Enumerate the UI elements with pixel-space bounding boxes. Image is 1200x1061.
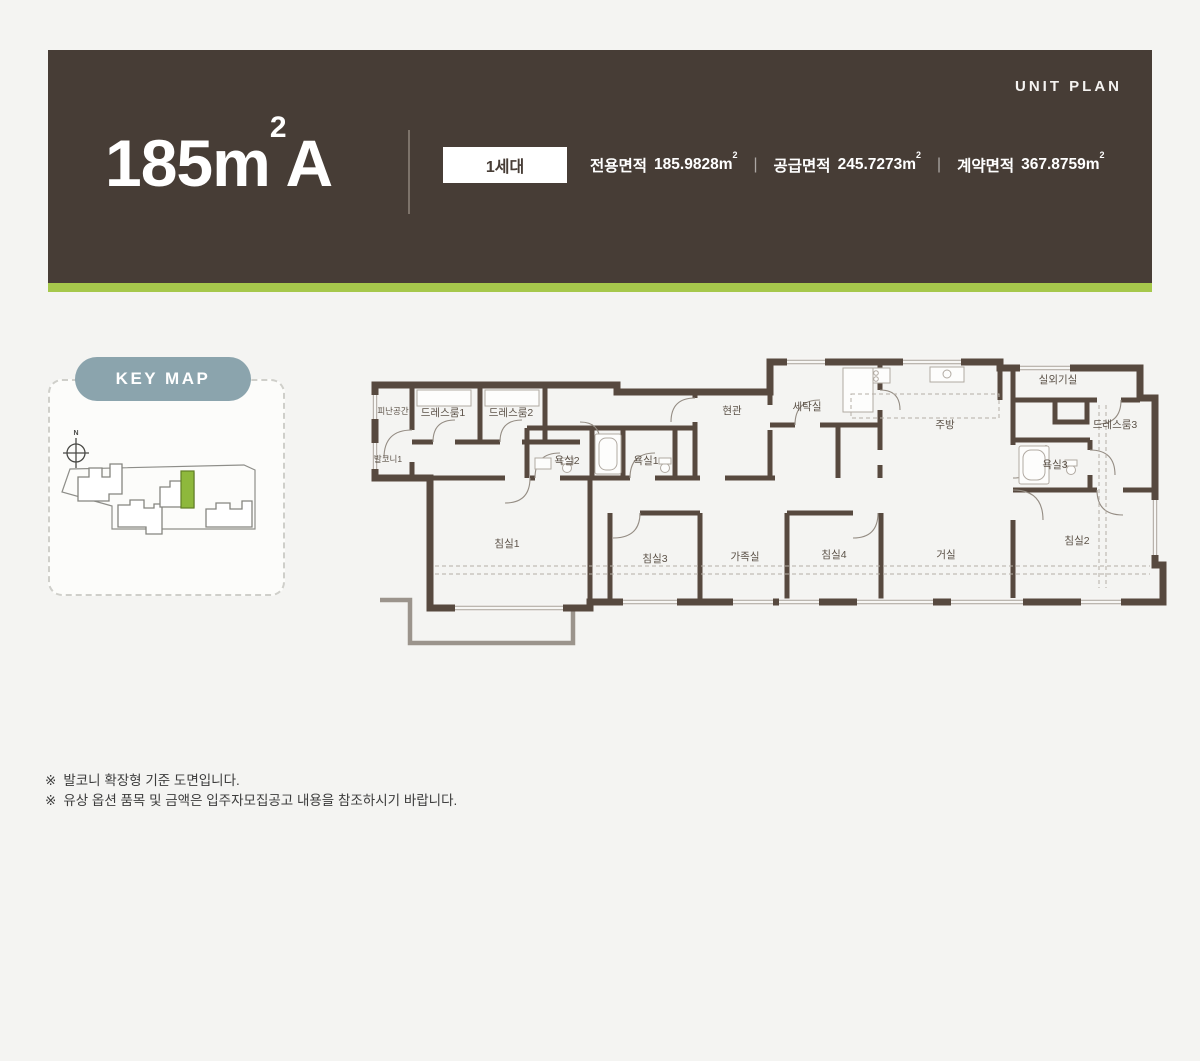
keymap-title-pill: KEY MAP [75, 357, 251, 401]
room-label: 세탁실 [793, 401, 822, 413]
footnote-mark: ※ [45, 771, 56, 791]
building-footprints [78, 464, 252, 534]
green-accent-bar [48, 283, 1152, 292]
room-label: 침실4 [821, 549, 846, 561]
room-label: 욕실3 [1042, 459, 1067, 471]
title-suffix: A [286, 126, 333, 200]
footnote-text: 발코니 확장형 기준 도면입니다. [63, 771, 239, 791]
room-label: 침실2 [1064, 535, 1089, 547]
floorplan-drawing: 피난공간 드레스룸1 드레스룸2 발코니1 욕실2 욕실1 현관 세탁실 주방 … [355, 350, 1170, 655]
unit-plan-label: UNIT PLAN [1015, 78, 1122, 95]
footnote-mark: ※ [45, 791, 56, 811]
room-label: 욕실1 [633, 455, 658, 467]
room-label: 실외기실 [1039, 374, 1078, 386]
room-label: 거실 [936, 549, 955, 561]
room-label: 드레스룸2 [489, 407, 534, 419]
keymap-label: KEY MAP [116, 369, 211, 389]
footnote-line: ※ 발코니 확장형 기준 도면입니다. [45, 771, 457, 791]
room-label: 발코니1 [374, 454, 402, 464]
area-separator: | [934, 156, 944, 174]
area-label: 공급면적 [774, 154, 831, 176]
compass-icon [63, 438, 89, 468]
area-separator: | [751, 156, 761, 174]
area-spec-supply: 공급면적 245.7273m2 [774, 154, 922, 176]
area-specs: 전용면적 185.9828m2 | 공급면적 245.7273m2 | 계약면적… [590, 147, 1105, 183]
page-title: 185m2A [105, 130, 332, 196]
area-value: 185.9828m2 [654, 155, 737, 174]
area-label: 전용면적 [590, 154, 647, 176]
area-value: 245.7273m2 [838, 155, 921, 174]
title-divider [408, 130, 410, 214]
room-label: 침실1 [494, 538, 519, 550]
room-label: 드레스룸3 [1093, 419, 1138, 431]
footnote-text: 유상 옵션 품목 및 금액은 입주자모집공고 내용을 참조하시기 바랍니다. [63, 791, 457, 811]
room-label: 피난공간 [377, 406, 408, 416]
area-label: 계약면적 [957, 154, 1014, 176]
area-spec-contract: 계약면적 367.8759m2 [957, 154, 1105, 176]
footnotes: ※ 발코니 확장형 기준 도면입니다. ※ 유상 옵션 품목 및 금액은 입주자… [45, 771, 457, 811]
room-label: 가족실 [731, 551, 760, 563]
area-spec-exclusive: 전용면적 185.9828m2 [590, 154, 738, 176]
footnote-line: ※ 유상 옵션 품목 및 금액은 입주자모집공고 내용을 참조하시기 바랍니다. [45, 791, 457, 811]
utility-closet-walls [1055, 400, 1087, 422]
page: UNIT PLAN 185m2A 1세대 전용면적 185.9828m2 | 공… [0, 0, 1200, 1061]
room-label: 욕실2 [554, 455, 579, 467]
title-main: 185m [105, 126, 270, 200]
compass-north-label: N [73, 430, 78, 437]
room-label: 현관 [722, 405, 742, 417]
title-superscript: 2 [270, 111, 286, 144]
highlighted-unit-building [181, 471, 194, 508]
header-band: UNIT PLAN 185m2A 1세대 전용면적 185.9828m2 | 공… [48, 50, 1152, 283]
household-badge: 1세대 [443, 147, 567, 183]
area-value: 367.8759m2 [1021, 155, 1104, 174]
room-label: 침실3 [642, 553, 667, 565]
room-label: 드레스룸1 [421, 407, 466, 419]
room-label: 주방 [935, 419, 955, 431]
keymap-drawing: N [48, 379, 285, 596]
